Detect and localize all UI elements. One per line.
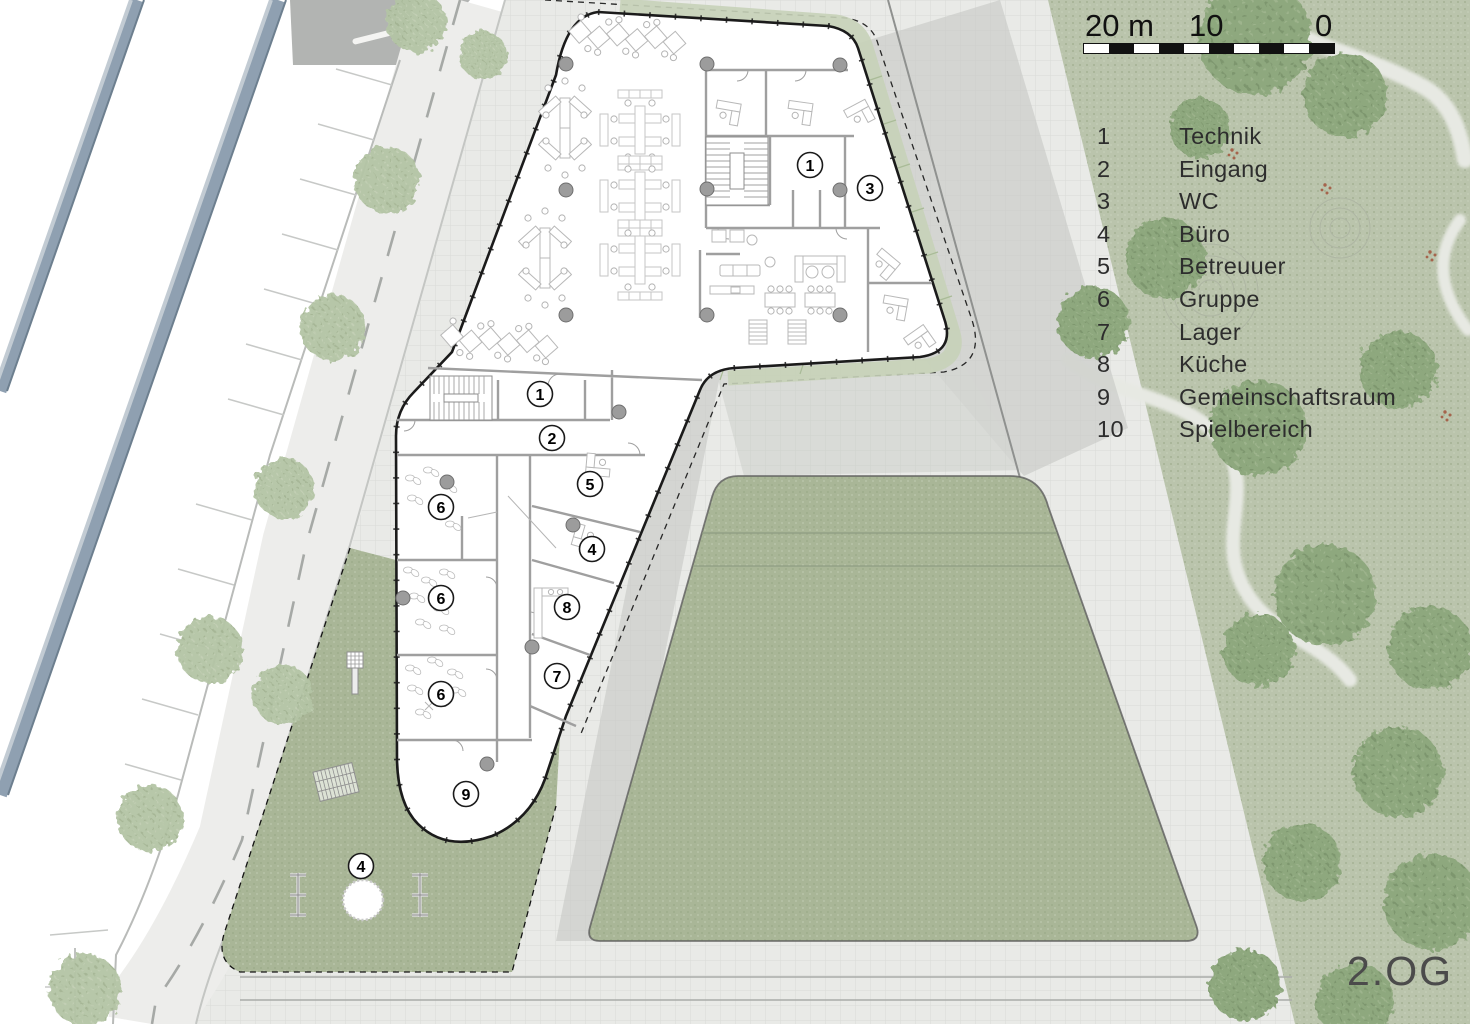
room-badge: 8 xyxy=(555,595,580,620)
room-badge: 1 xyxy=(798,153,823,178)
legend-item-label: Büro xyxy=(1179,219,1230,252)
room-badge: 6 xyxy=(429,682,454,707)
legend-item-number: 5 xyxy=(1097,251,1179,284)
legend-item: 6Gruppe xyxy=(1097,284,1396,317)
room-badge-number: 9 xyxy=(462,787,471,804)
legend-item-label: Küche xyxy=(1179,349,1248,382)
scale-segment xyxy=(1209,44,1234,53)
legend-item-label: Lager xyxy=(1179,317,1241,350)
scale-segment xyxy=(1159,44,1184,53)
room-badge-number: 7 xyxy=(553,669,562,686)
legend-item: 5Betreuuer xyxy=(1097,251,1396,284)
scale-bar-segments xyxy=(1083,43,1335,54)
legend-item-number: 8 xyxy=(1097,349,1179,382)
scale-segment xyxy=(1109,44,1134,53)
legend-item-number: 7 xyxy=(1097,317,1179,350)
room-badge-number: 4 xyxy=(357,859,366,876)
room-badge: 4 xyxy=(580,537,605,562)
scale-segment xyxy=(1309,44,1334,53)
room-badge: 1 xyxy=(528,382,553,407)
site-plan-page: 1312546668794 20 m 10 0 1Technik2Eingang… xyxy=(0,0,1470,1024)
room-badge-number: 6 xyxy=(437,591,446,608)
legend-item-number: 4 xyxy=(1097,219,1179,252)
legend-item-number: 2 xyxy=(1097,154,1179,187)
legend-item: 4Büro xyxy=(1097,219,1396,252)
legend-item-number: 9 xyxy=(1097,382,1179,415)
legend-item-label: Technik xyxy=(1179,121,1261,154)
room-badge-number: 4 xyxy=(588,542,597,559)
sand-circle xyxy=(343,880,383,920)
legend-item: 9Gemeinschaftsraum xyxy=(1097,382,1396,415)
room-badge: 2 xyxy=(540,426,565,451)
legend-item: 7Lager xyxy=(1097,317,1396,350)
legend: 1Technik2Eingang3WC4Büro5Betreuuer6Grupp… xyxy=(1097,121,1396,447)
scale-bar: 20 m 10 0 xyxy=(1083,8,1343,54)
legend-item: 8Küche xyxy=(1097,349,1396,382)
room-badge: 7 xyxy=(545,664,570,689)
legend-item-number: 10 xyxy=(1097,414,1179,447)
room-badge: 4 xyxy=(349,854,374,879)
scale-label-10: 10 xyxy=(1189,8,1223,44)
room-badge: 6 xyxy=(429,495,454,520)
legend-item-label: Spielbereich xyxy=(1179,414,1313,447)
scale-segment xyxy=(1134,44,1159,53)
legend-item-number: 6 xyxy=(1097,284,1179,317)
scale-segment xyxy=(1234,44,1259,53)
legend-item: 10Spielbereich xyxy=(1097,414,1396,447)
room-badge: 3 xyxy=(858,176,883,201)
legend-item-label: WC xyxy=(1179,186,1219,219)
legend-item-label: Gruppe xyxy=(1179,284,1260,317)
scale-label-20: 20 m xyxy=(1085,8,1154,44)
room-badge-number: 1 xyxy=(536,387,545,404)
room-badge-number: 6 xyxy=(437,687,446,704)
legend-item-label: Gemeinschaftsraum xyxy=(1179,382,1396,415)
room-badge-number: 3 xyxy=(866,181,875,198)
room-badge-number: 2 xyxy=(548,431,557,448)
room-badge: 6 xyxy=(429,586,454,611)
room-badge: 9 xyxy=(454,782,479,807)
legend-item-number: 1 xyxy=(1097,121,1179,154)
scale-segment xyxy=(1284,44,1309,53)
room-badge-number: 8 xyxy=(563,600,572,617)
scale-label-0: 0 xyxy=(1315,8,1332,44)
legend-item-label: Betreuuer xyxy=(1179,251,1286,284)
legend-item-label: Eingang xyxy=(1179,154,1268,187)
legend-item: 2Eingang xyxy=(1097,154,1396,187)
legend-item: 1Technik xyxy=(1097,121,1396,154)
scale-segment xyxy=(1259,44,1284,53)
scale-segment xyxy=(1184,44,1209,53)
legend-item-number: 3 xyxy=(1097,186,1179,219)
room-badge-number: 1 xyxy=(806,158,815,175)
room-badge-number: 6 xyxy=(437,500,446,517)
floor-label: 2.OG xyxy=(1347,948,1453,995)
legend-item: 3WC xyxy=(1097,186,1396,219)
scale-segment xyxy=(1084,44,1109,53)
room-badge: 5 xyxy=(578,472,603,497)
room-badge-number: 5 xyxy=(586,477,595,494)
